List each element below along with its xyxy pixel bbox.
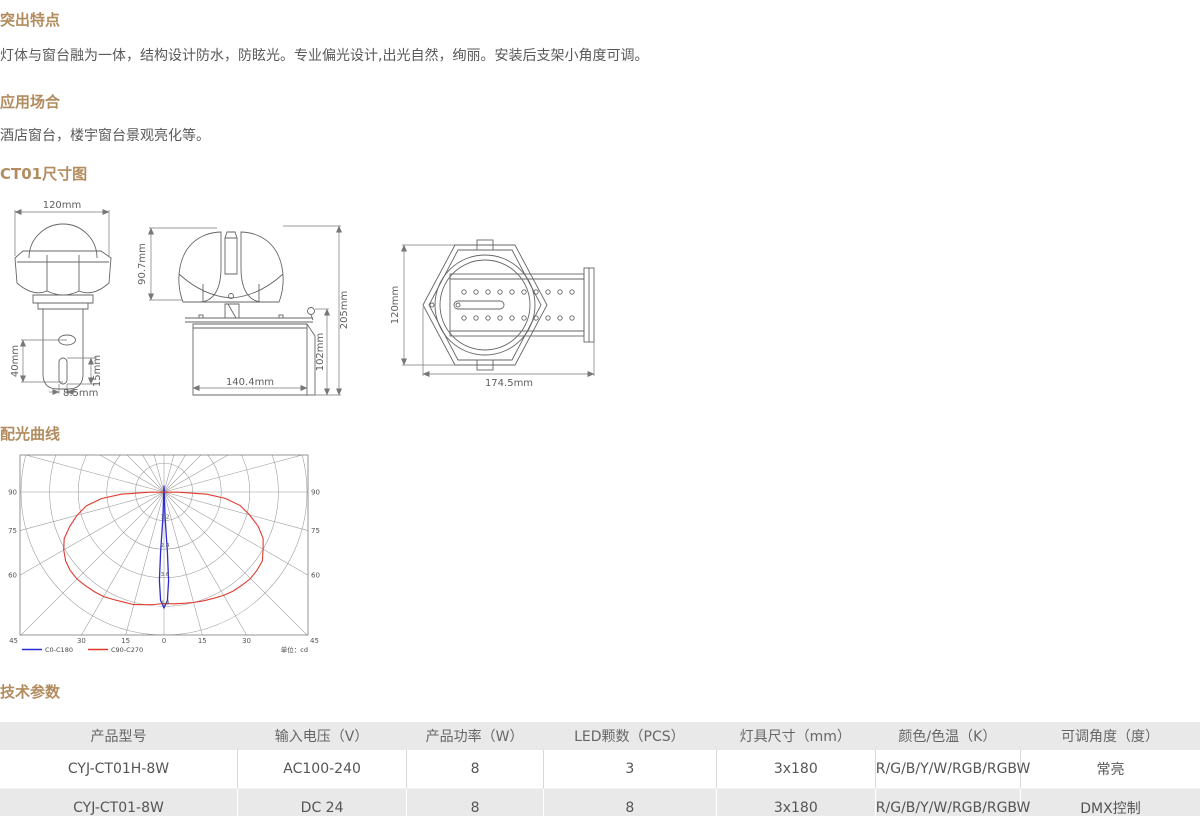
legend-label: C90-C270 — [111, 646, 143, 654]
table-header-cell: 产品功率（W） — [406, 722, 543, 750]
table-cell: AC100-240 — [237, 750, 406, 789]
legend-label: C0-C180 — [45, 646, 73, 654]
dim-side-total-height: 205mm — [339, 291, 350, 330]
section-title-photometry: 配光曲线 — [0, 424, 60, 444]
axis-tick-label: 4.8 — [161, 600, 170, 606]
light-distribution-chart: 90907575606045453030151501.22.43.64.8C0-… — [8, 450, 323, 656]
axis-tick-label: 1.2 — [161, 515, 170, 521]
polar-grid — [8, 450, 323, 656]
dim-side-body-height: 102mm — [315, 333, 326, 372]
axis-tick-label: 75 — [311, 527, 320, 535]
table-header-row: 产品型号输入电压（V）产品功率（W）LED颗数（PCS）灯具尺寸（mm）颜色/色… — [0, 722, 1200, 750]
dim-side-body-width: 140.4mm — [226, 377, 274, 388]
axis-tick-label: 15 — [121, 637, 130, 645]
axis-tick-label: 90 — [8, 489, 17, 497]
table-cell: 3x180 — [716, 789, 875, 816]
table-header-cell: 可调角度（度） — [1020, 722, 1200, 750]
dim-top-height: 120mm — [390, 286, 401, 325]
chart-legend: C0-C180C90-C270 — [22, 646, 143, 654]
axis-tick-label: 90 — [311, 489, 320, 497]
applications-paragraph: 酒店窗台，楼宇窗台景观亮化等。 — [0, 126, 210, 146]
axis-tick-label: 45 — [310, 637, 319, 645]
axis-tick-label: 0 — [162, 637, 166, 645]
table-header-cell: 颜色/色温（K） — [875, 722, 1020, 750]
table-cell: 8 — [406, 750, 543, 789]
axis-tick-label: 15 — [198, 637, 207, 645]
product-detail-page: 突出特点 灯体与窗台融为一体，结构设计防水，防眩光。专业偏光设计,出光自然，绚丽… — [0, 0, 1200, 816]
section-title-specs: 技术参数 — [0, 682, 60, 702]
axis-tick-label: 45 — [9, 637, 18, 645]
table-cell: R/G/B/Y/W/RGB/RGBW — [875, 789, 1020, 816]
axis-tick-label: 2.4 — [161, 543, 170, 549]
features-paragraph: 灯体与窗台融为一体，结构设计防水，防眩光。专业偏光设计,出光自然，绚丽。安装后支… — [0, 46, 648, 66]
table-row: CYJ-CT01H-8WAC100-240833x180R/G/B/Y/W/RG… — [0, 750, 1200, 789]
dim-side-head-height: 90.7mm — [137, 243, 148, 285]
dim-front-bracket-height: 40mm — [10, 345, 21, 377]
table-row: CYJ-CT01-8WDC 24883x180R/G/B/Y/W/RGB/RGB… — [0, 789, 1200, 816]
specs-table: 产品型号输入电压（V）产品功率（W）LED颗数（PCS）灯具尺寸（mm）颜色/色… — [0, 722, 1200, 816]
unit-label: 单位：cd — [281, 645, 308, 654]
front-view-drawing: 120mm 40mm 15mm 8.5mm — [5, 198, 123, 408]
axis-tick-label: 30 — [77, 637, 86, 645]
table-header-cell: 输入电压（V） — [237, 722, 406, 750]
table-cell: 8 — [406, 789, 543, 816]
dim-front-width: 120mm — [43, 200, 82, 211]
table-cell: DC 24 — [237, 789, 406, 816]
axis-tick-label: 3.6 — [161, 572, 170, 578]
top-view-drawing: 120mm 174.5mm — [388, 228, 603, 390]
axis-tick-label: 60 — [8, 572, 17, 580]
dim-top-length: 174.5mm — [485, 378, 533, 389]
table-cell: CYJ-CT01H-8W — [0, 750, 237, 789]
axis-tick-label: 60 — [311, 572, 320, 580]
section-title-features: 突出特点 — [0, 10, 60, 30]
table-cell: 3 — [543, 750, 716, 789]
dim-front-slot-width: 8.5mm — [63, 388, 98, 399]
dim-front-slot-height: 15mm — [92, 355, 103, 387]
table-cell: 8 — [543, 789, 716, 816]
table-header-cell: 产品型号 — [0, 722, 237, 750]
table-cell: 常亮 — [1020, 750, 1200, 789]
section-title-applications: 应用场合 — [0, 92, 60, 112]
table-cell: 3x180 — [716, 750, 875, 789]
table-header-cell: 灯具尺寸（mm） — [716, 722, 875, 750]
axis-tick-label: 75 — [8, 527, 17, 535]
table-cell: R/G/B/Y/W/RGB/RGBW — [875, 750, 1020, 789]
table-header-cell: LED颗数（PCS） — [543, 722, 716, 750]
side-view-drawing: 90.7mm 205mm 102mm 140.4mm — [133, 212, 358, 407]
table-cell: DMX控制 — [1020, 789, 1200, 816]
axis-tick-label: 30 — [242, 637, 251, 645]
section-title-dimensions: CT01尺寸图 — [0, 164, 87, 184]
table-cell: CYJ-CT01-8W — [0, 789, 237, 816]
